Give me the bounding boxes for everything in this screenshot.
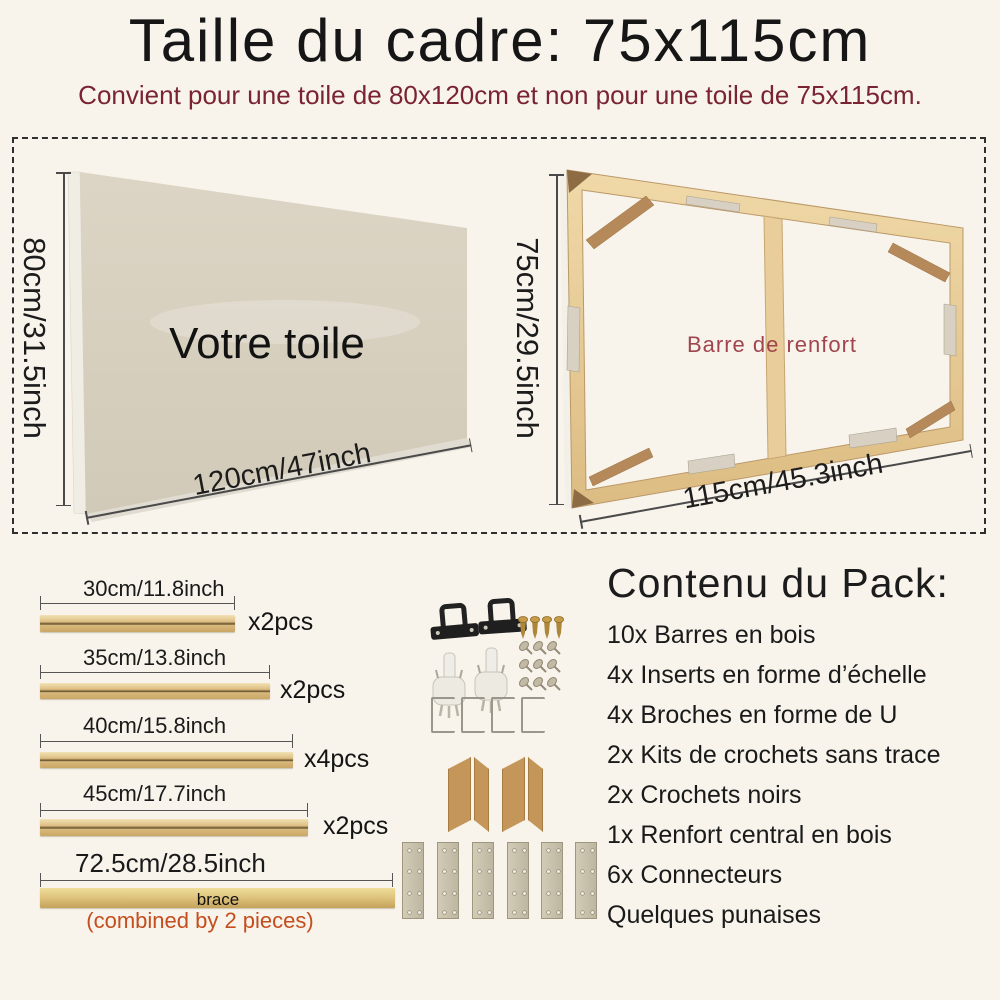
brace-label: brace [197,890,240,910]
wood-insert-icon [448,757,471,832]
pack-item: 10x Barres en bois [607,615,992,655]
bar-measure-line [40,810,308,811]
dim-tick [549,174,564,176]
wood-insert-icon [474,757,489,832]
wood-bar-45cm [40,819,308,836]
connector-plate-icon [541,842,563,919]
connector-plate-icon [507,842,529,919]
dim-tick [56,172,71,174]
bar-size-label: 35cm/13.8inch [83,645,226,671]
pack-heading: Contenu du Pack: [607,560,949,607]
bar-size-label: 40cm/15.8inch [83,713,226,739]
screw-icons [518,615,568,642]
pack-list: 10x Barres en bois 4x Inserts en forme d… [607,615,992,935]
dim-tick [392,873,393,887]
pack-item: 4x Broches en forme de U [607,695,992,735]
wood-bar-40cm [40,752,293,768]
dim-tick [307,803,308,817]
wood-insert-icon [502,757,525,832]
pin-icon [518,640,532,654]
u-bracket-icon [431,697,455,733]
u-bracket-icon [461,697,485,733]
dim-tick [292,734,293,748]
pack-item: 6x Connecteurs [607,855,992,895]
wood-bar-35cm [40,683,270,699]
brace-note: (combined by 2 pieces) [86,908,313,934]
dim-tick [40,734,41,748]
bar-measure-line [40,741,293,742]
canvas-height-dim-line [63,172,65,506]
bar-qty-label: x2pcs [248,608,313,637]
connector-plate-icon [575,842,597,919]
pack-item: Quelques punaises [607,895,992,935]
frame-height-label: 75cm/29.5inch [509,237,545,439]
black-hook-icon [426,600,481,646]
dim-tick [549,504,564,506]
pack-item: 2x Kits de crochets sans trace [607,735,992,775]
dim-tick [269,665,270,679]
bar-qty-label: x2pcs [280,676,345,705]
bar-size-label: 45cm/17.7inch [83,781,226,807]
u-bracket-icon [491,697,515,733]
canvas-title: Votre toile [169,319,365,369]
bar-qty-label: x4pcs [304,745,369,774]
connector-plate-icon [472,842,494,919]
connector-plate-icon [437,842,459,919]
dim-tick [40,596,41,610]
connector-plate-icon [402,842,424,919]
screw-icon [518,617,527,640]
dim-tick [40,873,41,887]
u-bracket-icon [521,697,545,733]
wood-insert-icon [528,757,543,832]
dim-tick [56,505,71,507]
wood-bar-30cm [40,615,235,632]
bar-size-label: 30cm/11.8inch [83,576,224,602]
pack-item: 2x Crochets noirs [607,775,992,815]
dim-tick [40,803,41,817]
bar-measure-line [40,880,393,881]
dim-tick [40,665,41,679]
bar-size-label: 72.5cm/28.5inch [75,848,266,879]
page-title: Taille du cadre: 75x115cm [0,6,1000,75]
pin-icons [518,640,568,696]
bar-measure-line [40,603,235,604]
pack-item: 4x Inserts en forme d’échelle [607,655,992,695]
bar-measure-line [40,672,270,673]
page-subtitle: Convient pour une toile de 80x120cm et n… [0,80,1000,111]
bar-qty-label: x2pcs [323,812,388,841]
frame-reinforcement-label: Barre de renfort [687,332,857,358]
frame-height-dim-line [556,174,558,505]
pack-item: 1x Renfort central en bois [607,815,992,855]
canvas-height-label: 80cm/31.5inch [16,237,52,439]
dim-tick [234,596,235,610]
